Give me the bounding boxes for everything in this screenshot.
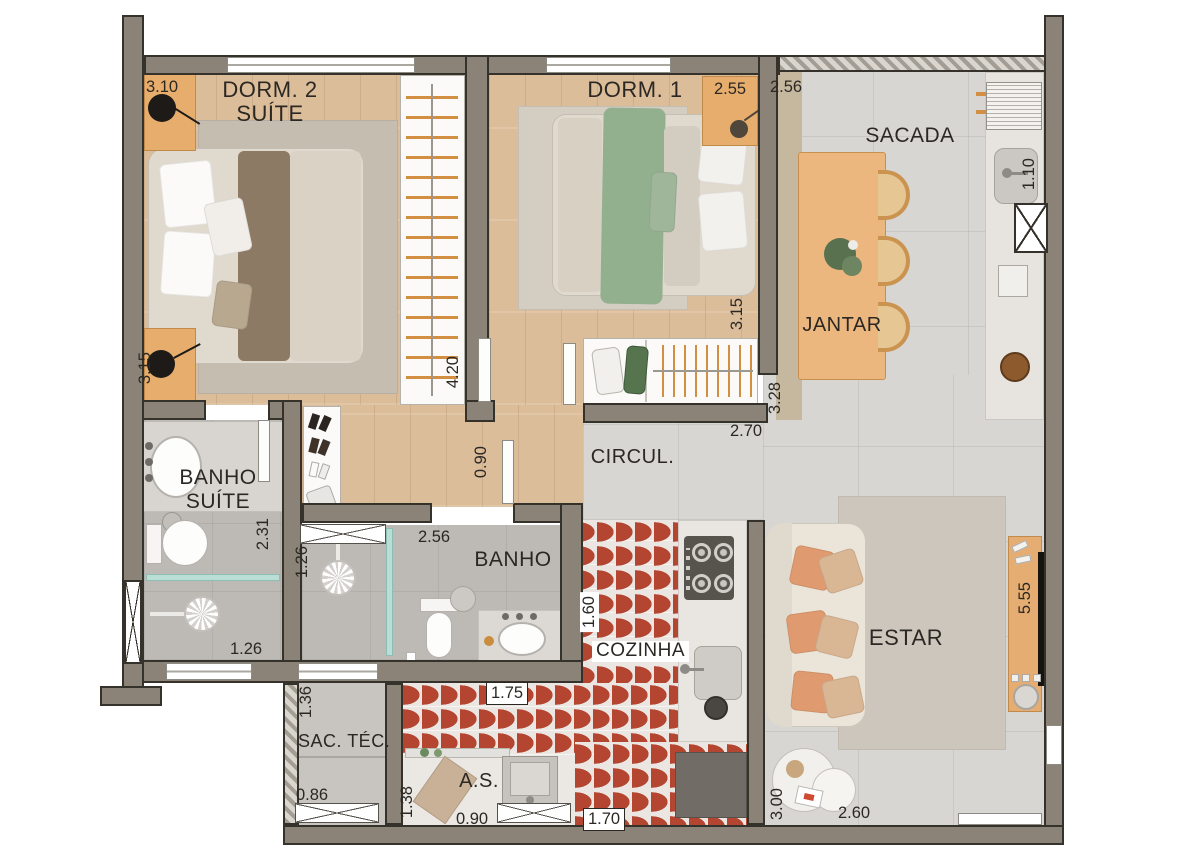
window-estar-bottom [958,813,1042,825]
wall-dorm1-sacada [758,55,778,375]
door-dorm2 [478,338,491,402]
floor-plan: DORM. 2 SUÍTE DORM. 1 SACADA JANTAR CIRC… [0,0,1200,868]
dim-cozinha-bottom: 1.70 [583,808,625,831]
dim-banho-shower: 1.26 [293,546,312,578]
bed-dorm2-pillow-2 [160,230,216,297]
wall-right [1044,15,1064,845]
room-label-jantar: JANTAR [799,314,885,336]
bed-dorm1-pillow-green [648,171,677,232]
suitcase-green [623,345,649,395]
column-sacada [1014,203,1048,253]
nightstand-dorm1-decor [730,120,748,138]
banho-toilet-bowl [426,612,452,658]
window-as [497,803,571,823]
dim-estar-width: 2.60 [838,804,870,823]
banho-suite-glass [146,574,280,581]
dim-circul-width: 2.70 [730,422,762,441]
bs-knob-3 [145,474,153,482]
wall-dorm2-bottom-a [142,400,206,420]
table-plant-2 [842,256,862,276]
bed-dorm2-pillow-4 [211,280,253,331]
room-label-banho-suite-line2: SUÍTE [162,490,274,513]
dim-as-depth: 1.38 [398,786,417,818]
room-label-estar: ESTAR [862,626,950,650]
grill [986,82,1042,130]
sac-tec-divider [299,756,385,758]
dim-jantar-depth: 3.28 [766,382,785,414]
dim-sacada-counter: 1.10 [1020,158,1039,190]
kettle [704,696,728,720]
window-banho [298,663,378,680]
closet-dorm2-rod [431,84,433,396]
banho-knob-3 [530,613,537,620]
banho-sink [498,622,546,656]
banho-suite-shower-arm [150,612,186,616]
bs-knob-2 [145,458,153,466]
dim-estar-depth: 3.00 [768,788,787,820]
dim-banho-suite-depth: 2.31 [254,518,273,550]
dim-sac-tec-width: 0.86 [296,786,328,805]
room-label-dorm1: DORM. 1 [555,78,715,102]
dim-dorm2-closet: 4.20 [444,356,463,388]
floor-hall [302,405,583,507]
sacada-bowl [1000,352,1030,382]
burner-2 [714,543,733,562]
bed-dorm2-blanket-brown [238,151,290,361]
room-label-circul: CIRCUL. [585,446,680,468]
lamp-dorm2-top [148,94,176,122]
cooktop-knobs [686,548,690,590]
room-label-sacada: SACADA [852,124,968,147]
door-dorm1 [563,343,576,405]
wall-hall-stub [465,400,495,422]
wall-banho-top-b [513,503,562,523]
bs-knob-1 [145,442,153,450]
fridge [675,752,747,818]
door-banho [502,440,514,504]
kitchen-sink [694,646,742,700]
column-banho-suite [124,580,142,664]
banho-knob-1 [502,613,509,620]
banho-shower-head [320,560,356,596]
console-decor-3 [1033,674,1041,682]
banho-gold-decor [484,636,494,646]
window-estar-right [1046,725,1062,765]
vent-window-banho [300,524,386,544]
coffee-table-cup [786,760,804,778]
banho-suite-toilet-bowl [162,520,208,566]
window-banho-suite [166,663,252,680]
banho-stool [450,586,476,612]
room-label-dorm2-line2: SUÍTE [185,102,355,126]
banho-glass [386,528,393,656]
sacada-decor-box [998,265,1028,297]
banho-suite-shower-head [184,596,220,632]
grill-handle-1 [976,92,986,96]
bed-dorm1-sheet-left [558,118,602,292]
as-shelf-plant [420,748,429,757]
dim-cozinha-pass-top: 1.60 [580,592,599,632]
dim-as-width: 0.90 [456,810,488,829]
dim-dorm1-width: 2.55 [714,80,746,99]
wall-dorm1-closet [583,403,768,423]
room-label-sac-tec: SAC. TÉC. [298,732,390,752]
banho-knob-2 [516,613,523,620]
bed-dorm2-duvet [290,151,361,361]
banho-suite-toilet-tank [146,524,162,564]
burner-1 [692,543,711,562]
room-label-banho-suite-line1: BANHO [162,466,274,489]
burner-3 [692,574,711,593]
dim-banho-suite-width: 1.26 [230,640,262,659]
console-decor-2 [1022,674,1030,682]
window-dorm1 [546,57,671,73]
dim-dorm2-width: 3.10 [146,78,178,97]
closet-dorm1-rod [653,370,753,372]
wall-banho-suite-right [282,400,302,683]
sacada-sink-faucet-knob [1002,168,1012,178]
sacada-railing [778,55,1046,72]
room-label-as: A.S. [456,770,502,792]
wall-banho-top-a [302,503,432,523]
dim-estar-length: 5.55 [1016,582,1035,614]
dim-cozinha-pass-mid: 1.75 [486,682,528,705]
wall-kitchen-estar [747,520,765,825]
console-decor [1011,674,1019,682]
dim-sacada-top: 2.56 [770,78,802,97]
window-sac-tec [295,803,379,823]
table-flower [848,240,858,250]
room-label-banho: BANHO [468,548,558,571]
dim-dorm1-depth: 3.15 [728,298,747,330]
room-label-cozinha: COZINHA [592,641,689,662]
as-shelf-plant-2 [434,749,442,757]
burner-4 [714,574,733,593]
sofa-pillow-6 [820,674,865,719]
wall-left-foot [100,686,162,706]
dim-dorm2-depth: 3.15 [136,352,155,384]
wall-bottom [283,825,1064,845]
room-label-dorm2-line1: DORM. 2 [185,78,355,102]
bed-dorm1-pillow-2 [698,190,749,252]
kitchen-faucet-knob [680,664,690,674]
laundry-sink-basin [510,762,550,796]
console-lamp [1013,684,1039,710]
grill-handle-2 [976,110,986,114]
dim-hall-width: 0.90 [472,446,491,478]
dim-sac-tec-depth: 1.36 [297,686,316,718]
window-dorm2 [227,57,415,73]
dim-banho-width: 2.56 [418,528,450,547]
